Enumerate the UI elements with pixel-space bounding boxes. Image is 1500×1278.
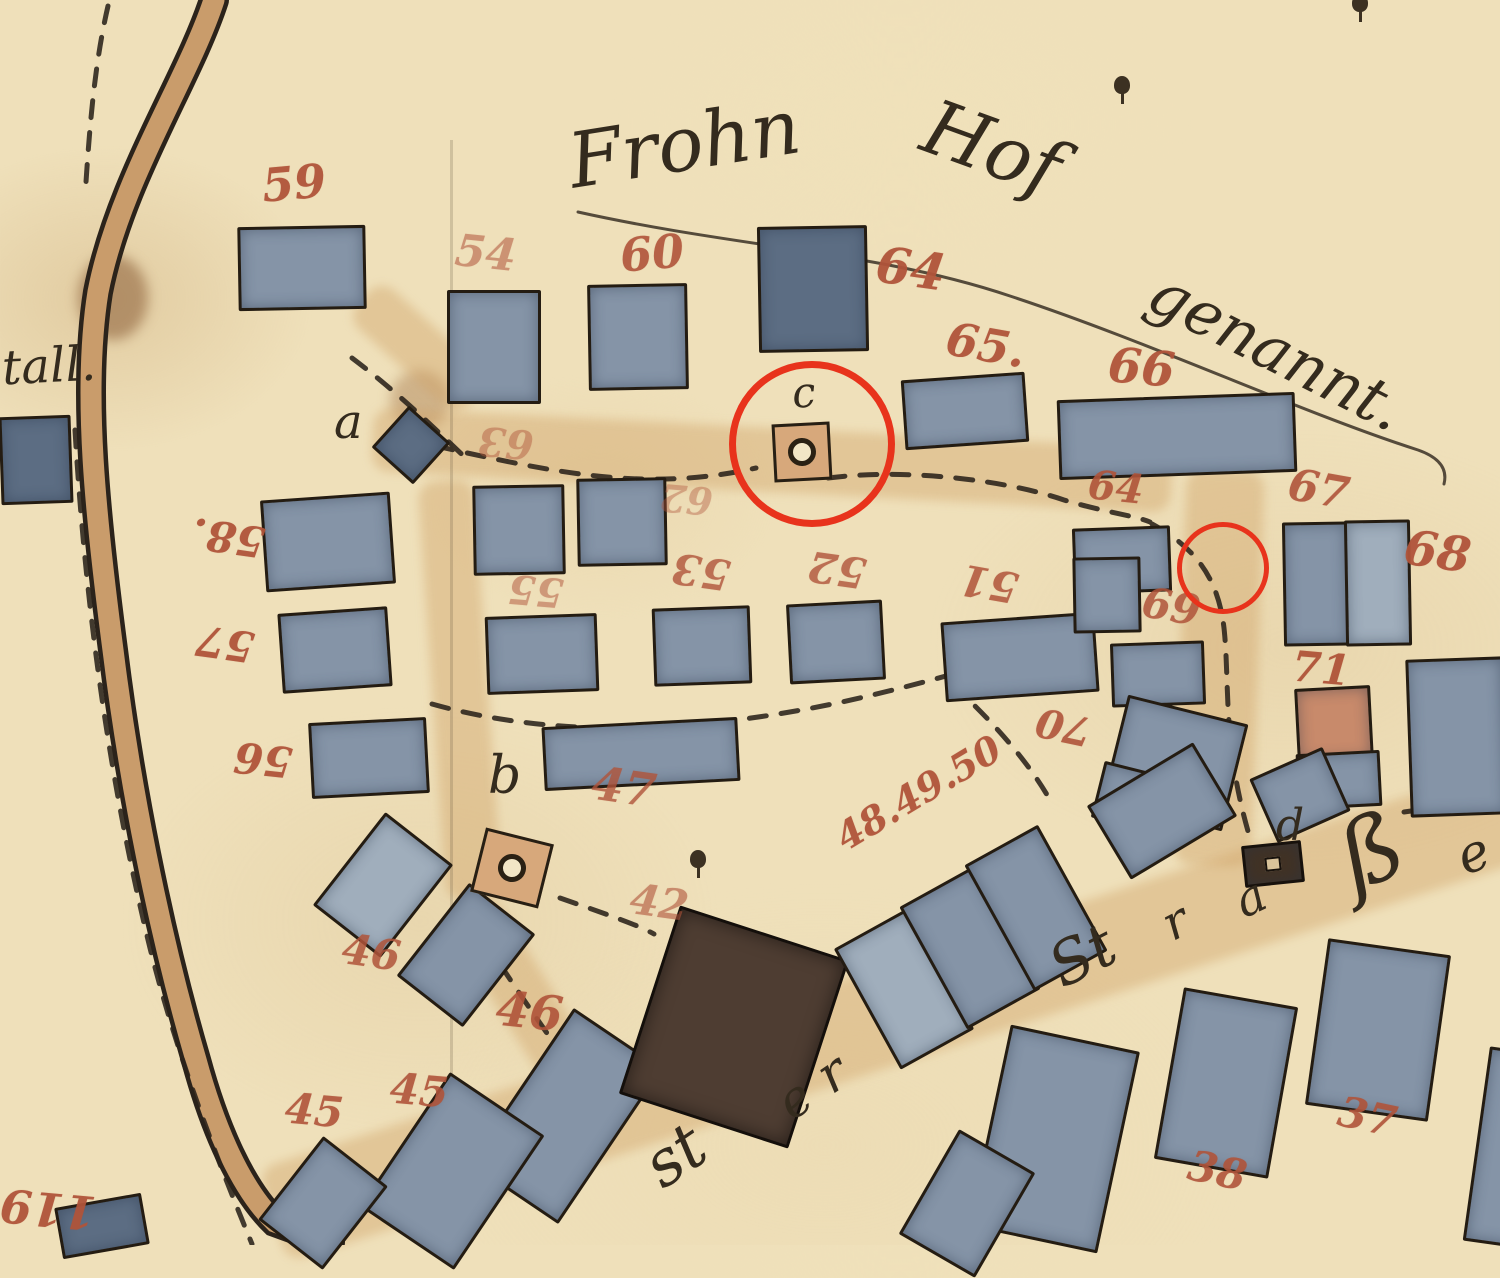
plot-number: 38 (1184, 1144, 1250, 1197)
building (260, 492, 396, 593)
plot-number: 64 (1086, 465, 1146, 511)
building (1072, 556, 1141, 633)
plot-number: 52 (805, 544, 869, 594)
building (786, 600, 886, 685)
plot-number: 67 (1285, 463, 1353, 517)
building (1405, 656, 1500, 817)
well-ring (495, 851, 529, 885)
dashed-path (86, 6, 108, 182)
building (472, 484, 566, 576)
plot-number: 46 (494, 985, 565, 1040)
building (1344, 519, 1412, 646)
plot-number: 56 (232, 735, 295, 783)
annotation-circle (729, 361, 895, 527)
building (447, 290, 541, 404)
plot-number: 71 (1290, 646, 1352, 693)
plot-number: 62 (658, 478, 714, 520)
building (277, 606, 392, 693)
plot-number: 59 (260, 157, 328, 208)
tree-trunk (697, 866, 700, 878)
tree-trunk (1121, 92, 1124, 104)
plot-number: 64 (873, 239, 949, 298)
map-canvas: 5954606465.6664676869717058.575655535251… (0, 0, 1500, 1245)
plot-number: 119 (0, 1182, 98, 1236)
plot-number: 54 (453, 229, 518, 279)
plot-number: 55 (506, 568, 565, 613)
plot-number: 65. (943, 315, 1030, 374)
plot-number: 42 (627, 878, 691, 928)
plot-number: 46 (339, 928, 403, 978)
plot-number: 63 (476, 420, 535, 465)
tree-icon (1114, 76, 1130, 104)
plot-number: 45 (388, 1068, 450, 1115)
building (587, 283, 689, 391)
tree-icon (1352, 0, 1368, 22)
plot-number: 60 (618, 227, 686, 278)
building (308, 717, 430, 799)
building (757, 225, 869, 353)
tree-trunk (1359, 10, 1362, 22)
plot-number: 57 (193, 618, 257, 668)
building (576, 477, 668, 567)
plot-number: 53 (669, 546, 733, 596)
plot-number: 68 (1401, 524, 1474, 581)
plot-number: 66 (1106, 341, 1177, 395)
stall-label-fragment: tall. (1, 340, 97, 393)
building (1110, 640, 1206, 707)
letter-b: b (488, 750, 521, 802)
plot-number: 37 (1334, 1090, 1400, 1143)
building (237, 225, 366, 311)
building (901, 372, 1030, 450)
plot-number: 70 (1032, 701, 1095, 752)
plot-number: 51 (957, 557, 1022, 609)
letter-a: a (334, 398, 363, 446)
plot-number: 47 (589, 760, 659, 814)
tree-icon (690, 850, 706, 878)
building (1282, 521, 1350, 646)
annotation-circle (1177, 522, 1269, 614)
building (0, 415, 74, 505)
letter-d: d (1276, 804, 1304, 848)
pump-inner-square (1264, 856, 1281, 872)
plot-number: 45 (283, 1088, 345, 1135)
plot-number: 58. (189, 511, 267, 563)
building (485, 613, 600, 695)
building (652, 605, 753, 686)
